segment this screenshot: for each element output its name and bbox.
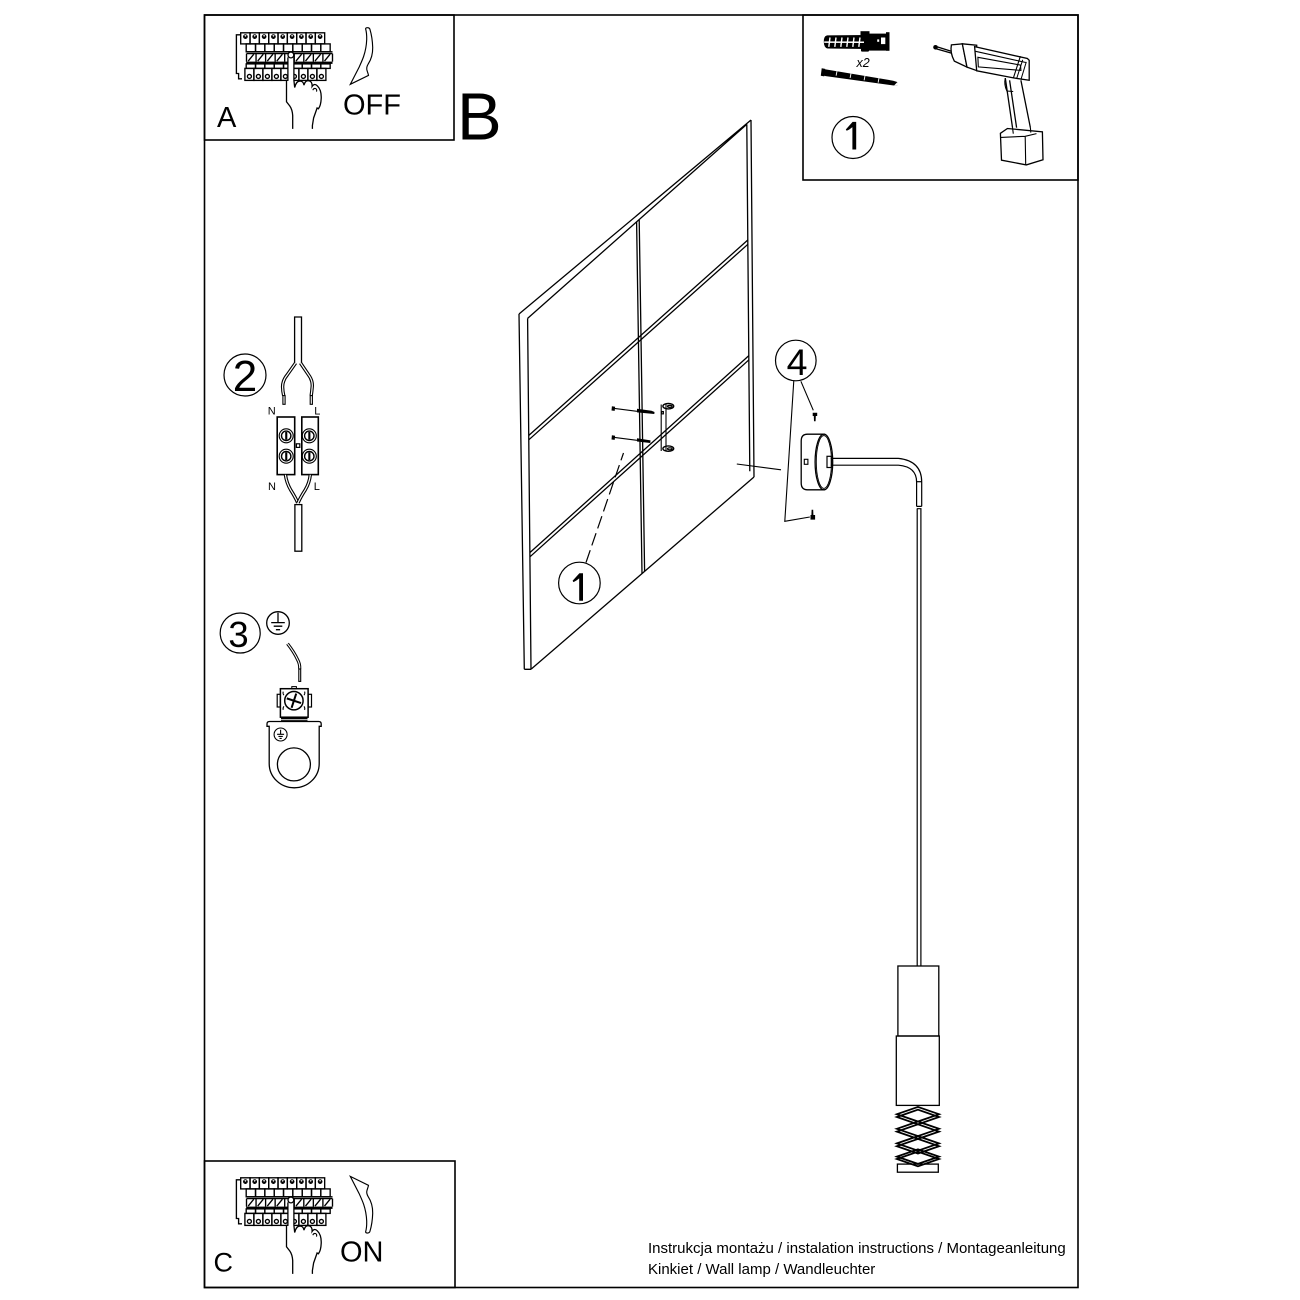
svg-text:2: 2 <box>233 352 257 401</box>
svg-text:C: C <box>214 1248 234 1278</box>
svg-text:L: L <box>314 481 320 493</box>
svg-text:N: N <box>268 481 276 493</box>
svg-text:Kinkiet / Wall lamp / Wandleuc: Kinkiet / Wall lamp / Wandleuchter <box>648 1261 875 1278</box>
svg-text:L: L <box>314 405 320 417</box>
svg-text:Instrukcja montażu / instalati: Instrukcja montażu / instalation instruc… <box>648 1240 1066 1257</box>
svg-text:OFF: OFF <box>343 90 401 122</box>
svg-text:N: N <box>268 405 276 417</box>
svg-text:A: A <box>217 102 237 134</box>
svg-text:B: B <box>457 80 502 155</box>
svg-text:x2: x2 <box>856 56 870 70</box>
svg-text:ON: ON <box>340 1237 384 1269</box>
svg-text:4: 4 <box>787 341 808 383</box>
svg-text:3: 3 <box>228 614 248 655</box>
